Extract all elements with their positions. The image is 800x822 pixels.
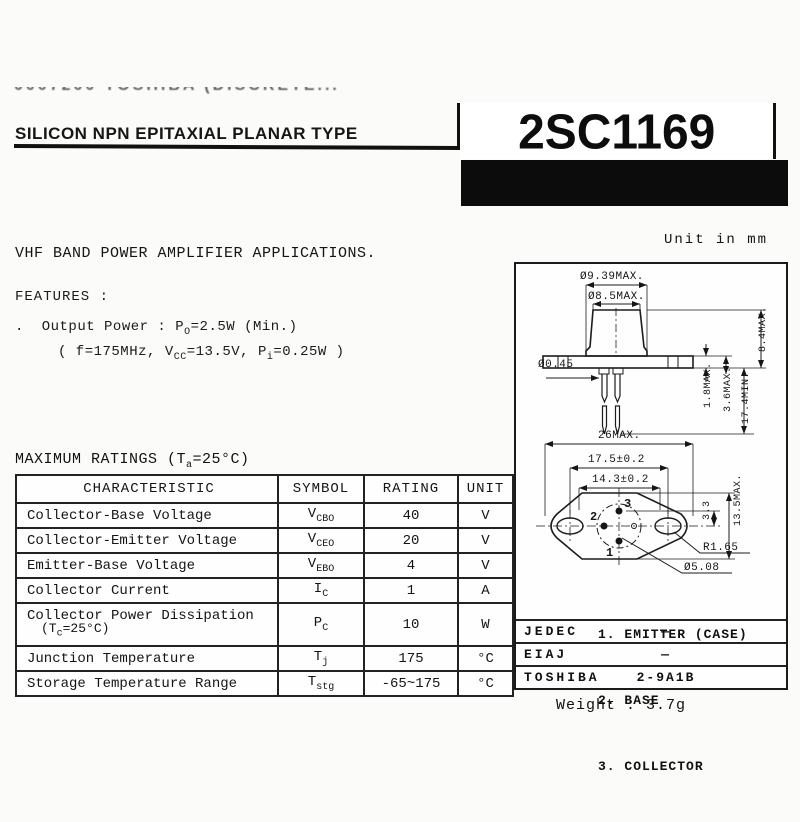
table-row: Storage Temperature Range Tstg -65~175 °…: [16, 671, 513, 696]
standards-org: EIAJ: [524, 647, 567, 662]
table-row: Collector Power Dissipation(Tc=25°C) PC …: [16, 603, 513, 646]
part-number: 2SC1169: [518, 102, 715, 159]
dim-pin-offset: 3.3: [702, 500, 713, 520]
pin1-number: 1: [606, 546, 613, 560]
dim-cap-top-dia: Ø8.5MAX.: [588, 291, 645, 303]
table-row: Collector Current IC 1 A: [16, 578, 513, 603]
side-view: Ø9.39MAX. Ø8.5MAX.: [538, 271, 769, 434]
standards-code: 2-9A1B: [611, 670, 721, 685]
pin3-number: 3: [624, 497, 631, 511]
weight-note: Weight : 3.7g: [556, 697, 686, 714]
table-row: Junction Temperature Tj 175 °C: [16, 646, 513, 671]
dim-hole-spacing: 17.5±0.2: [588, 454, 645, 466]
feature-output-power: . Output Power : PO=2.5W (Min.): [15, 319, 297, 338]
table-header-row: CHARACTERISTIC SYMBOL RATING UNIT: [16, 475, 513, 503]
pin3-label: 3. COLLECTOR: [598, 756, 748, 778]
standards-org: JEDEC: [524, 624, 578, 639]
faded-doc-number: 0007200 TOSHIBA (DISCRETE...: [14, 87, 414, 100]
table-row: Emitter-Base Voltage VEBO 4 V: [16, 553, 513, 578]
features-heading: FEATURES :: [15, 289, 109, 305]
standards-org: TOSHIBA: [524, 670, 600, 685]
pin2-number: 2: [590, 510, 597, 524]
feature-conditions: ( f=175MHz, VCC=13.5V, Pi=0.25W ): [58, 344, 345, 363]
col-characteristic: CHARACTERISTIC: [16, 475, 278, 503]
dim-lead-dia: Ø0.45: [538, 359, 574, 371]
dim-flange-height: 13.5MAX.: [733, 474, 744, 526]
dim-cap-base-dia: Ø9.39MAX.: [580, 271, 644, 283]
package-outline-frame: Ø9.39MAX. Ø8.5MAX.: [514, 262, 788, 690]
col-unit: UNIT: [458, 475, 513, 503]
dim-flange-thickness: 1.8MAX.: [703, 362, 714, 408]
bottom-view: 26MAX. 17.5±0.2 14.3±0.2: [536, 430, 750, 574]
datasheet-page: { "header": { "faded_top_line": "0007200…: [0, 0, 800, 800]
application-line: VHF BAND POWER AMPLIFIER APPLICATIONS.: [15, 245, 376, 262]
title-underline: [14, 144, 461, 150]
dim-inner-span: 14.3±0.2: [592, 474, 649, 486]
table-row: Collector-Emitter Voltage VCEO 20 V: [16, 528, 513, 553]
standards-row-jedec: JEDEC —: [516, 619, 786, 644]
table-row: Collector-Base Voltage VCBO 40 V: [16, 503, 513, 528]
header-black-bar: [461, 160, 788, 206]
dim-flange-width: 26MAX.: [598, 430, 641, 442]
max-ratings-table: CHARACTERISTIC SYMBOL RATING UNIT Collec…: [15, 474, 514, 697]
col-symbol: SYMBOL: [278, 475, 364, 503]
unit-note: Unit in mm: [664, 232, 768, 248]
dim-seat-height: 3.6MAX.: [723, 366, 734, 412]
dim-cap-height: 8.4MAX.: [758, 306, 769, 352]
standards-code: —: [611, 647, 721, 662]
col-rating: RATING: [364, 475, 458, 503]
part-number-box: 2SC1169: [460, 103, 776, 159]
dim-lead-length: 17.4MIN.: [741, 372, 752, 424]
dim-pin-circle-dia: Ø5.08: [684, 562, 720, 574]
dim-hole-radius: R1.65: [703, 542, 739, 554]
standards-row-eiaj: EIAJ —: [516, 642, 786, 667]
max-ratings-title: MAXIMUM RATINGS (Ta=25°C): [15, 451, 250, 471]
standards-code: —: [611, 624, 721, 639]
device-type-title: SILICON NPN EPITAXIAL PLANAR TYPE: [15, 124, 358, 144]
standards-row-toshiba: TOSHIBA 2-9A1B: [516, 665, 786, 690]
